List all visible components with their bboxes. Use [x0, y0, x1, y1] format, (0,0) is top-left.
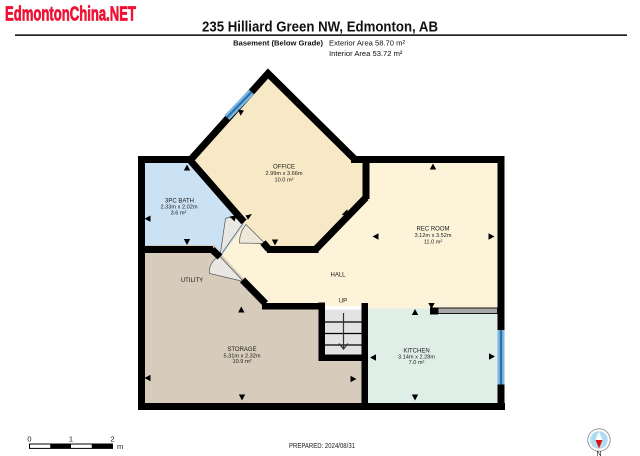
svg-text:UP: UP	[339, 299, 347, 305]
svg-text:2: 2	[110, 435, 114, 444]
svg-text:KITCHEN: KITCHEN	[403, 348, 429, 354]
svg-text:Basement (Below Grade): Basement (Below Grade)	[233, 39, 323, 48]
svg-text:0: 0	[27, 435, 31, 444]
svg-text:3.12m x 3.52m: 3.12m x 3.52m	[415, 233, 452, 239]
svg-text:3PC BATH: 3PC BATH	[165, 198, 194, 204]
svg-text:10.9 m²: 10.9 m²	[233, 359, 252, 365]
svg-text:7.0 m²: 7.0 m²	[409, 360, 425, 366]
svg-text:EdmontonChina.NET: EdmontonChina.NET	[5, 3, 136, 25]
svg-text:10.0 m²: 10.0 m²	[275, 178, 294, 184]
svg-text:1: 1	[69, 435, 73, 444]
svg-text:2.99m x 3.66m: 2.99m x 3.66m	[266, 171, 303, 177]
svg-text:Interior Area 53.72 m²: Interior Area 53.72 m²	[329, 49, 403, 58]
svg-text:Exterior Area 58.70 m²: Exterior Area 58.70 m²	[329, 39, 405, 48]
svg-text:3.6 m²: 3.6 m²	[171, 210, 187, 216]
svg-text:m: m	[117, 442, 123, 451]
svg-text:11.0 m²: 11.0 m²	[424, 240, 443, 246]
svg-text:PREPARED: 2024/08/31: PREPARED: 2024/08/31	[289, 443, 355, 450]
svg-text:UTILITY: UTILITY	[181, 278, 203, 284]
svg-text:OFFICE: OFFICE	[273, 165, 295, 171]
svg-text:STORAGE: STORAGE	[227, 347, 256, 353]
svg-text:N: N	[596, 451, 601, 456]
svg-text:235 Hilliard Green NW, Edmonto: 235 Hilliard Green NW, Edmonton, AB	[202, 20, 438, 36]
svg-text:HALL: HALL	[330, 273, 346, 279]
svg-text:REC ROOM: REC ROOM	[417, 227, 450, 233]
